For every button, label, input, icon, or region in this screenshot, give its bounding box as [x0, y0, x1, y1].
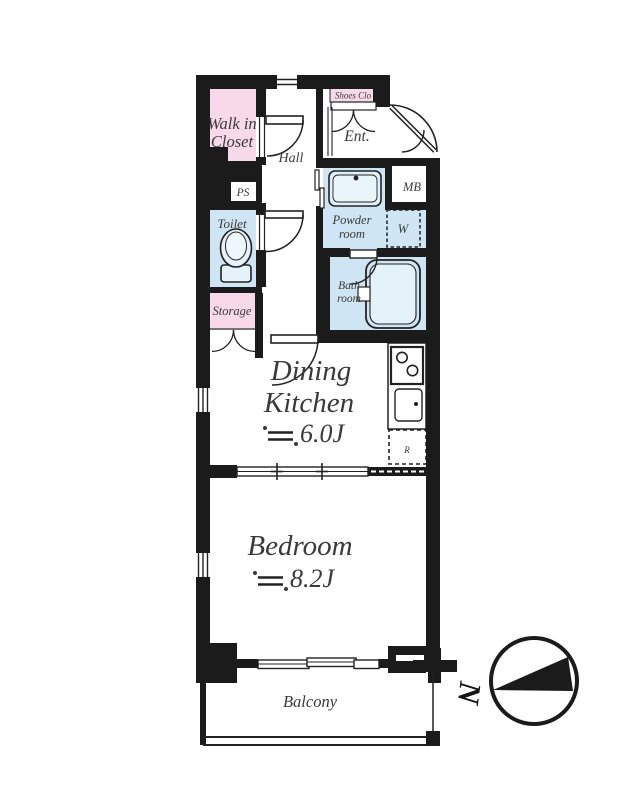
compass: N	[451, 638, 577, 724]
label-dining: Dining	[270, 355, 352, 387]
approx-equal-symbol-2	[253, 571, 288, 591]
powder-sliding-door	[315, 170, 324, 208]
label-powder-line2: room	[339, 227, 365, 241]
kitchen-sink	[395, 389, 422, 421]
kitchen-stove	[391, 347, 423, 384]
bathtub	[358, 260, 420, 328]
label-toilet: Toilet	[217, 216, 247, 231]
label-storage: Storage	[213, 304, 252, 318]
label-dk-area: 6.0J	[300, 419, 346, 448]
label-bedroom: Bedroom	[247, 530, 352, 562]
sink-faucet-dot	[414, 402, 418, 406]
floorplan-image: Walk in Closet Hall Shoes Clo Ent. MB PS…	[0, 0, 622, 800]
label-pipe-space: PS	[236, 187, 250, 199]
window-top	[277, 75, 297, 89]
approx-equal-symbol	[263, 426, 298, 446]
toilet-fixture	[221, 229, 252, 282]
faucet-dot	[354, 176, 359, 181]
bedroom-area-size: 8.2J	[253, 564, 336, 593]
north-label: N	[451, 679, 489, 708]
label-washer: W	[398, 222, 410, 236]
balcony-left-wall	[200, 683, 206, 745]
sliding-partition	[237, 463, 368, 480]
kitchen-unit	[388, 343, 426, 429]
window-left-dining	[196, 388, 210, 412]
toilet-door	[260, 211, 304, 252]
dk-area-size: 6.0J	[263, 419, 346, 448]
label-shoes-closet: Shoes Clo	[335, 91, 372, 101]
window-left-bedroom	[196, 553, 210, 577]
entrance-door	[390, 105, 437, 152]
label-walk-in-closet-line1: Walk in	[207, 114, 256, 133]
label-meter-box: MB	[402, 180, 421, 194]
label-kitchen: Kitchen	[263, 387, 354, 419]
label-hall: Hall	[278, 151, 304, 166]
label-entrance: Ent.	[343, 128, 369, 145]
label-bedroom-area: 8.2J	[290, 564, 336, 593]
entrance-step	[328, 107, 332, 156]
washbasin	[329, 171, 381, 206]
storage-doors	[210, 329, 255, 352]
label-bath-line1: Bath	[338, 280, 360, 292]
label-walk-in-closet-line2: Closet	[211, 132, 254, 151]
label-balcony: Balcony	[283, 692, 338, 711]
label-powder-line1: Powder	[332, 213, 372, 227]
balcony-railing	[203, 731, 440, 746]
floorplan-svg: Walk in Closet Hall Shoes Clo Ent. MB PS…	[0, 0, 622, 800]
label-bath-line2: room	[337, 293, 361, 305]
label-refrigerator: R	[403, 445, 410, 455]
balcony-window	[258, 658, 379, 669]
